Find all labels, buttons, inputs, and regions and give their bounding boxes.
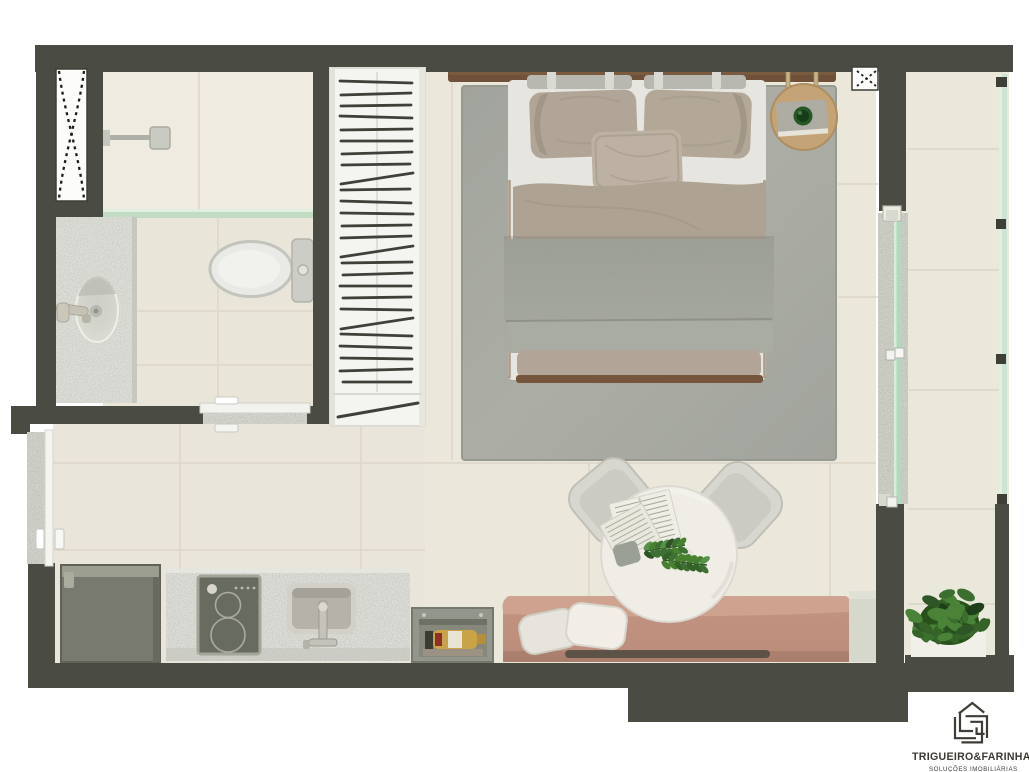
svg-text:SOLUÇÕES IMOBILIÁRIAS: SOLUÇÕES IMOBILIÁRIAS	[929, 766, 1018, 772]
svg-text:TRIGUEIRO&FARINHA: TRIGUEIRO&FARINHA	[912, 751, 1029, 763]
